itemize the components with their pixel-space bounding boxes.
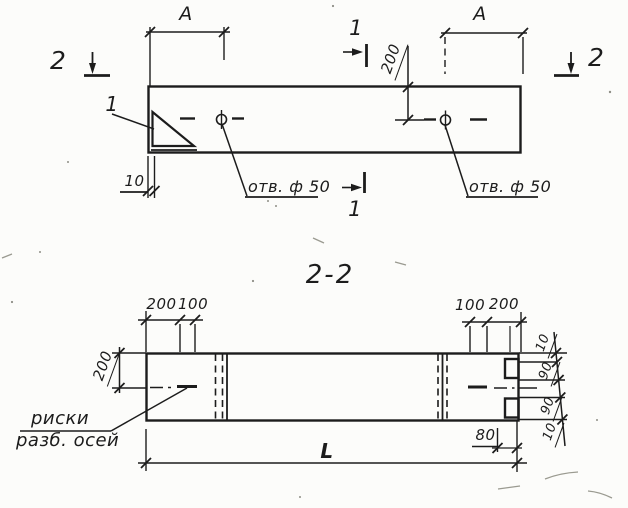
section-1-top-label: 1	[344, 18, 368, 39]
dim-a-left-lines	[145, 27, 230, 86]
section-2-right-label: 2	[588, 45, 604, 70]
section-2-left-label: 2	[50, 48, 66, 73]
section-cut-1-bottom	[342, 172, 365, 193]
section-beam-outline	[147, 354, 519, 421]
scan-speckles	[2, 5, 612, 498]
end-insert-squares	[505, 359, 519, 418]
detail-1-label: 1	[101, 94, 123, 114]
section-1-bottom-label: 1	[343, 199, 367, 220]
axis-note-line1: риски	[31, 410, 89, 428]
dim-200-right-top-label: 200	[488, 297, 520, 312]
section-cut-2-left	[84, 52, 110, 76]
section-joint-lines-left	[216, 354, 228, 420]
hole-right	[424, 111, 487, 130]
hole-label-right: отв. ф 50	[469, 179, 551, 195]
axis-note-line2: разб. осей	[16, 432, 119, 450]
section-cut-2-right	[554, 52, 579, 76]
dim-200-100-left-lines	[138, 311, 203, 352]
dim-100-left-top-label: 100	[178, 297, 208, 312]
dim-100-right-top-label: 100	[455, 298, 485, 313]
section-cut-1-top	[343, 44, 367, 67]
dim-a-right-label: A	[465, 5, 495, 24]
dim-a-right-lines	[440, 28, 528, 74]
dim-100-200-right-lines	[462, 312, 527, 352]
axis-mark-right	[468, 387, 537, 388]
axis-mark-left	[150, 387, 197, 388]
drawing-sheet: A A 2 2 1 1 1 200 отв. ф 50 отв. ф 50 10…	[0, 0, 628, 508]
hole-left	[180, 110, 244, 129]
end-gusset-triangle	[153, 112, 195, 146]
dim-80-label: 80	[472, 428, 499, 443]
dim-a-left-label: A	[171, 5, 201, 24]
section-joint-lines-right	[438, 354, 447, 420]
dim-length-label: L	[310, 441, 344, 461]
dim-10-label: 10	[121, 174, 148, 189]
top-view-beam-outline	[149, 87, 521, 153]
hole-label-left: отв. ф 50	[248, 179, 330, 195]
dim-200-left-top-label: 200	[146, 297, 177, 312]
section-view-title: 2-2	[298, 262, 362, 288]
